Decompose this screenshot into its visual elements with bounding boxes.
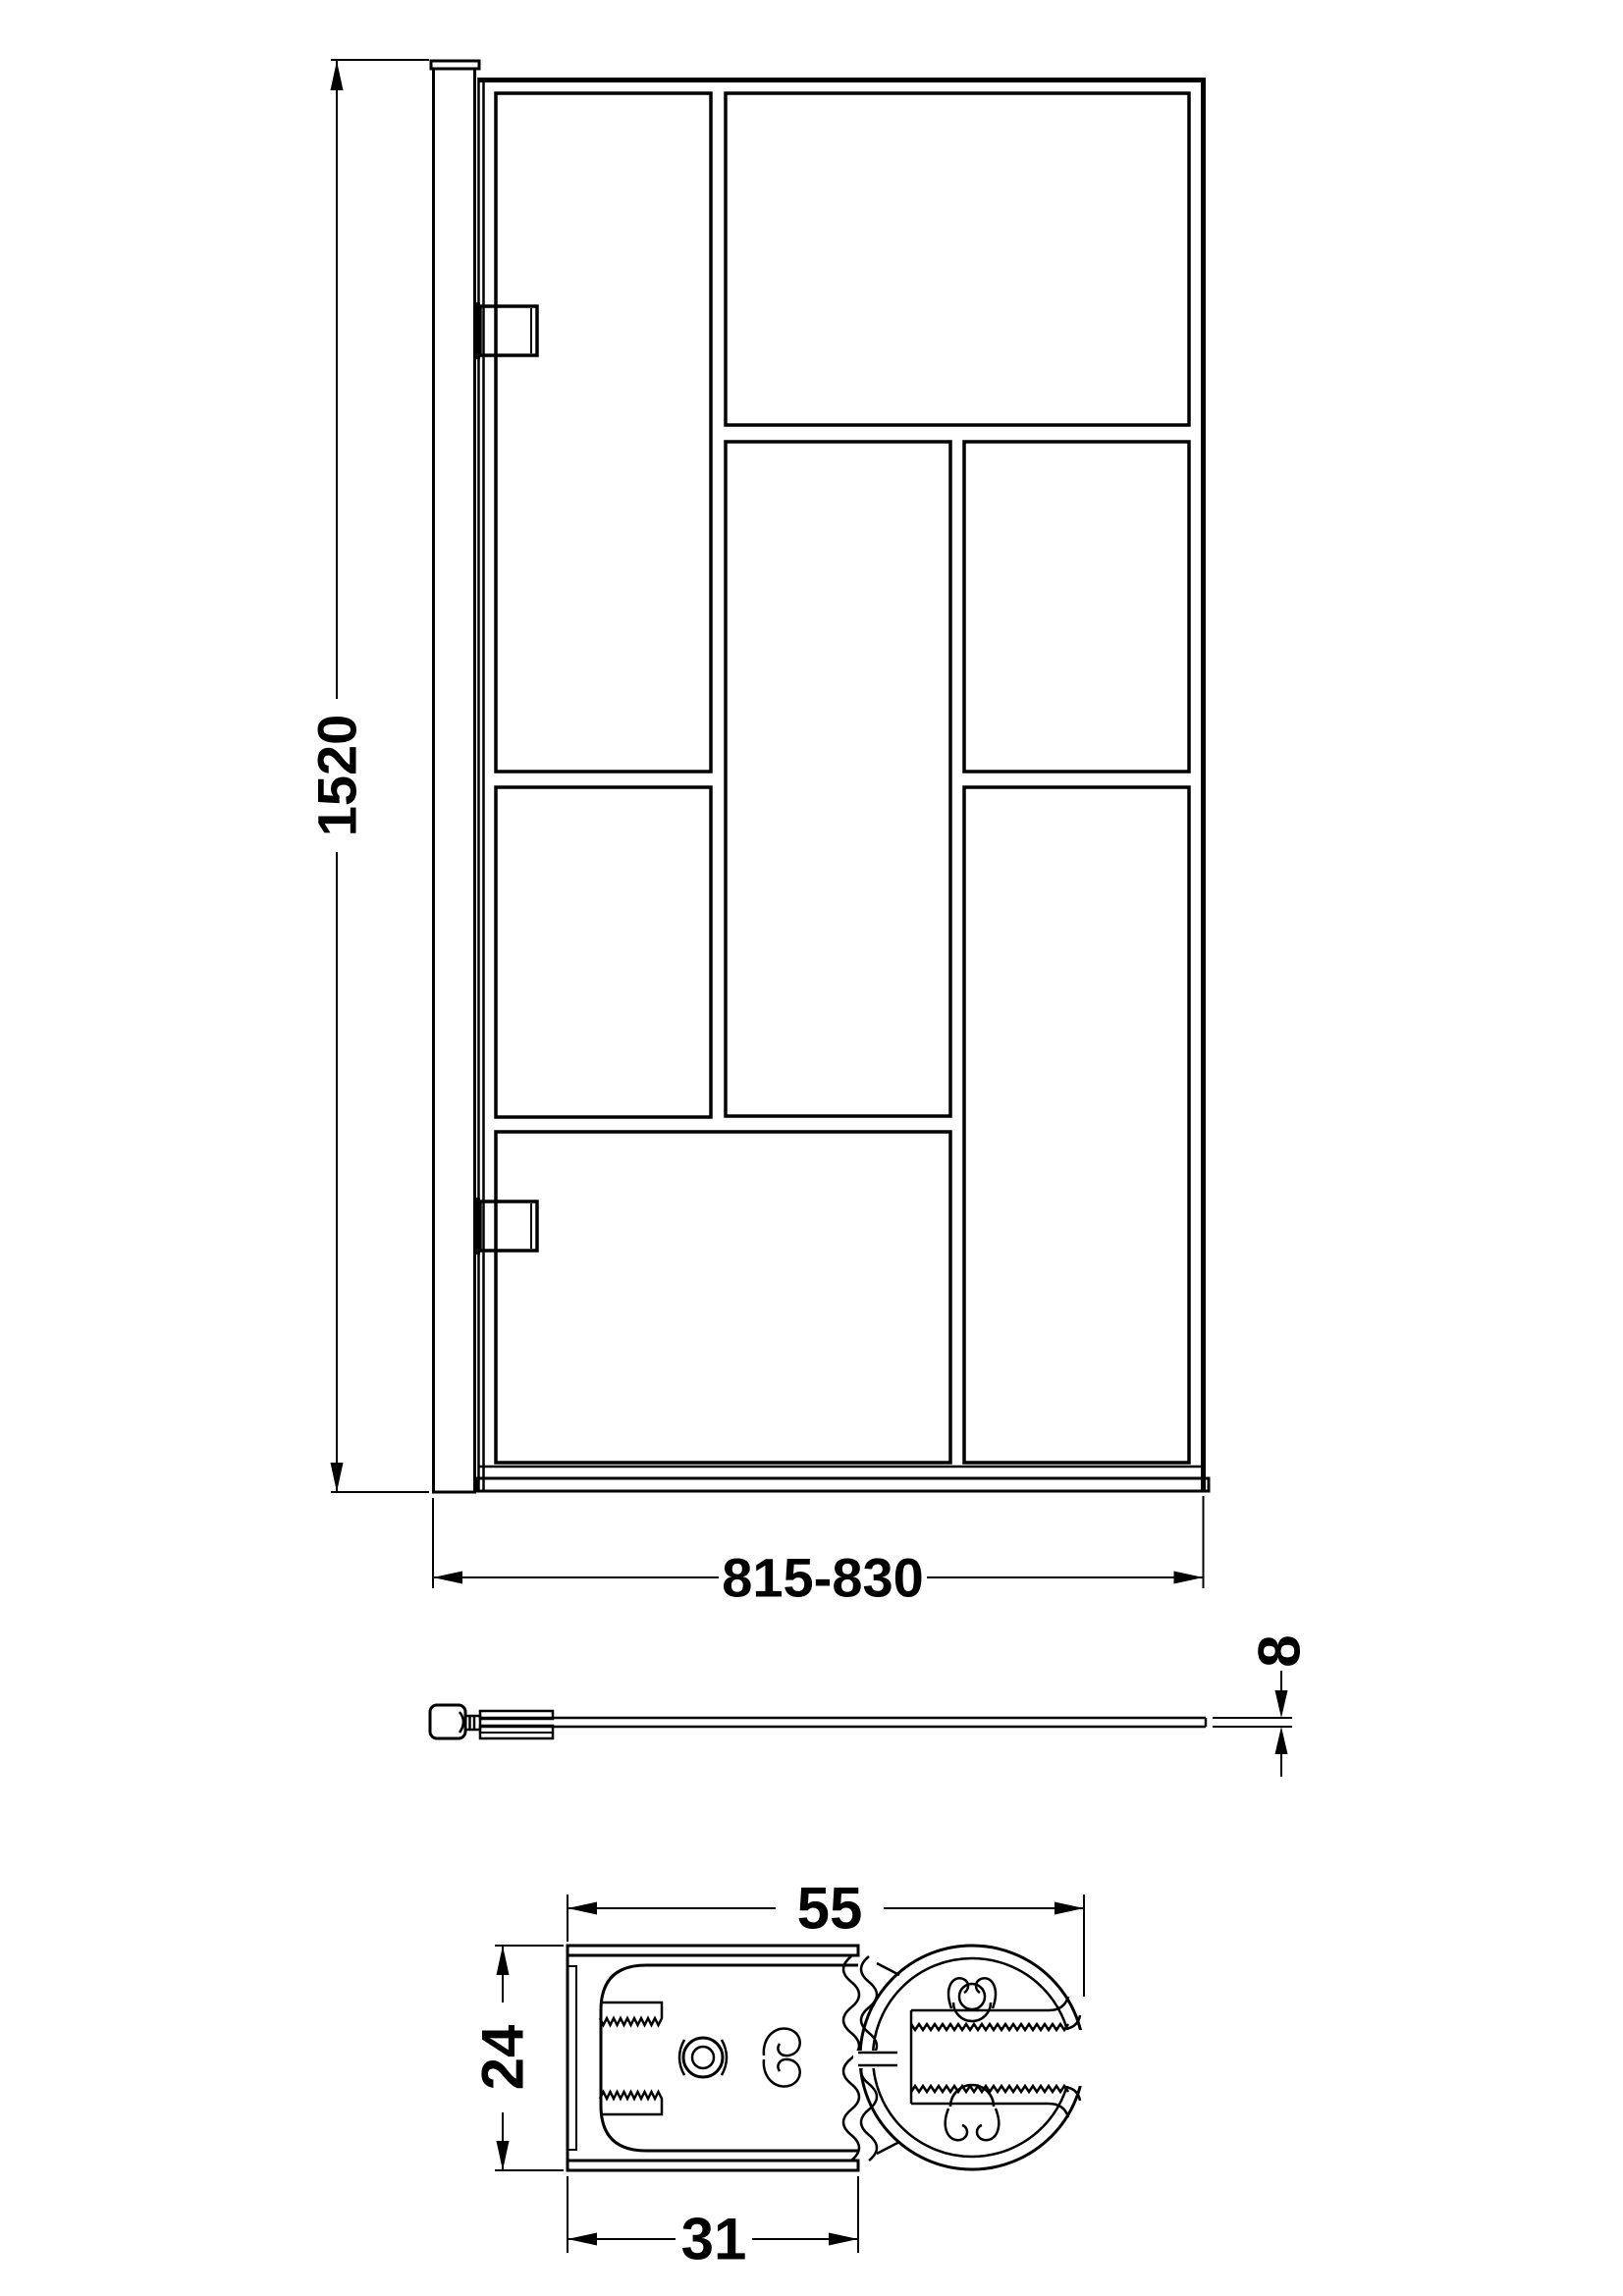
bottom-clamp-hook-left	[946, 2109, 967, 2140]
profile-depth-dimension: 24	[470, 1946, 565, 2170]
glass-jaw-serration-bottom	[911, 2086, 1068, 2092]
arrowhead-left	[433, 1572, 462, 1584]
serrated-jaw-bottom	[600, 2092, 662, 2114]
interlock-connector-top	[877, 1963, 899, 1975]
serrated-jaw-top	[600, 2002, 662, 2025]
profile-width-label: 55	[797, 1876, 863, 1942]
wall-profile-width-dimension: 31	[568, 2176, 858, 2272]
section-wall-channel	[568, 1946, 858, 2170]
pin-cradle-arc	[953, 2002, 991, 2021]
curl-clamp-top	[764, 2028, 800, 2056]
arrowhead-left	[568, 2233, 597, 2246]
profile-detail-view: 55 24 31	[470, 1876, 1095, 2272]
channel-cavity-wall	[601, 1965, 858, 2151]
arrowhead-right	[1174, 1572, 1204, 1584]
plan-glass	[481, 1718, 1206, 1727]
wall-profile-notch	[460, 1712, 463, 1733]
glass-panel	[496, 787, 711, 1117]
technical-drawing-canvas: 1520 815-830	[0, 0, 1623, 2296]
glass-thickness-dimension: 8	[1213, 1634, 1313, 1777]
hinge-clamp-plate	[480, 1201, 537, 1251]
glass-panel	[726, 442, 950, 1116]
arrowhead-down	[497, 2141, 510, 2170]
arrowhead-up	[331, 61, 344, 90]
glass-jaw-bottom-edge	[911, 2104, 1068, 2117]
screen-frame	[477, 78, 1209, 1491]
front-elevation-view: 1520 815-830	[306, 60, 1210, 1609]
glass-panel	[496, 93, 711, 772]
plan-wall-profile	[430, 1705, 553, 1738]
plan-view: 8	[430, 1634, 1313, 1777]
bottom-clamp-hook-right	[977, 2109, 999, 2140]
round-profile-inner-ring	[873, 1958, 1071, 2157]
profile-width-dimension: 55	[568, 1876, 1084, 1998]
arrowhead-right	[1055, 1902, 1084, 1915]
height-dimension: 1520	[306, 60, 430, 1492]
profile-depth-label: 24	[470, 2024, 536, 2090]
frame-bottom-rail	[477, 1478, 1209, 1491]
ring-slot-opening	[1060, 2030, 1094, 2086]
glass-panel	[496, 1132, 950, 1463]
pin-ear-left	[948, 1978, 968, 2008]
pin-ball	[959, 1984, 985, 2009]
hinge-clamp-plate	[480, 306, 537, 355]
screw-boss-inner	[692, 2047, 714, 2068]
section-round-profile	[853, 1946, 1094, 2169]
wall-profile-width-label: 31	[681, 2207, 747, 2272]
wall-profile-body	[430, 1705, 465, 1738]
glass-thickness-label: 8	[1247, 1634, 1313, 1667]
glass-jaw-serration-top	[911, 2024, 1068, 2030]
curl-clamp-bottom	[764, 2059, 800, 2087]
channel-top-flange	[568, 1946, 858, 1955]
arrowhead-up	[497, 1946, 510, 1975]
screw-boss-outer	[683, 2038, 723, 2077]
hinge-knuckle	[465, 1716, 480, 1730]
drawing-sheet: 1520 815-830	[0, 0, 1623, 2296]
arrowhead-right	[829, 2233, 858, 2246]
arrowhead-down	[1275, 1690, 1288, 1718]
height-dimension-label: 1520	[306, 715, 368, 837]
arrowhead-up	[1275, 1727, 1288, 1754]
pin-ear-right	[976, 1978, 996, 2008]
channel-bottom-flange	[568, 2161, 858, 2170]
arrowhead-left	[568, 1902, 597, 1915]
glass-panel	[964, 442, 1189, 772]
width-dimension-label: 815-830	[722, 1547, 924, 1609]
arrowhead-down	[331, 1463, 344, 1492]
wall-channel-cap	[431, 61, 479, 69]
glass-panel	[964, 787, 1189, 1463]
interlock-connector-bottom	[877, 2142, 899, 2154]
panel-grid	[496, 93, 1189, 1463]
width-dimension: 815-830	[433, 1496, 1204, 1609]
wall-channel-profile	[431, 61, 479, 1492]
glass-panel	[726, 93, 1189, 425]
